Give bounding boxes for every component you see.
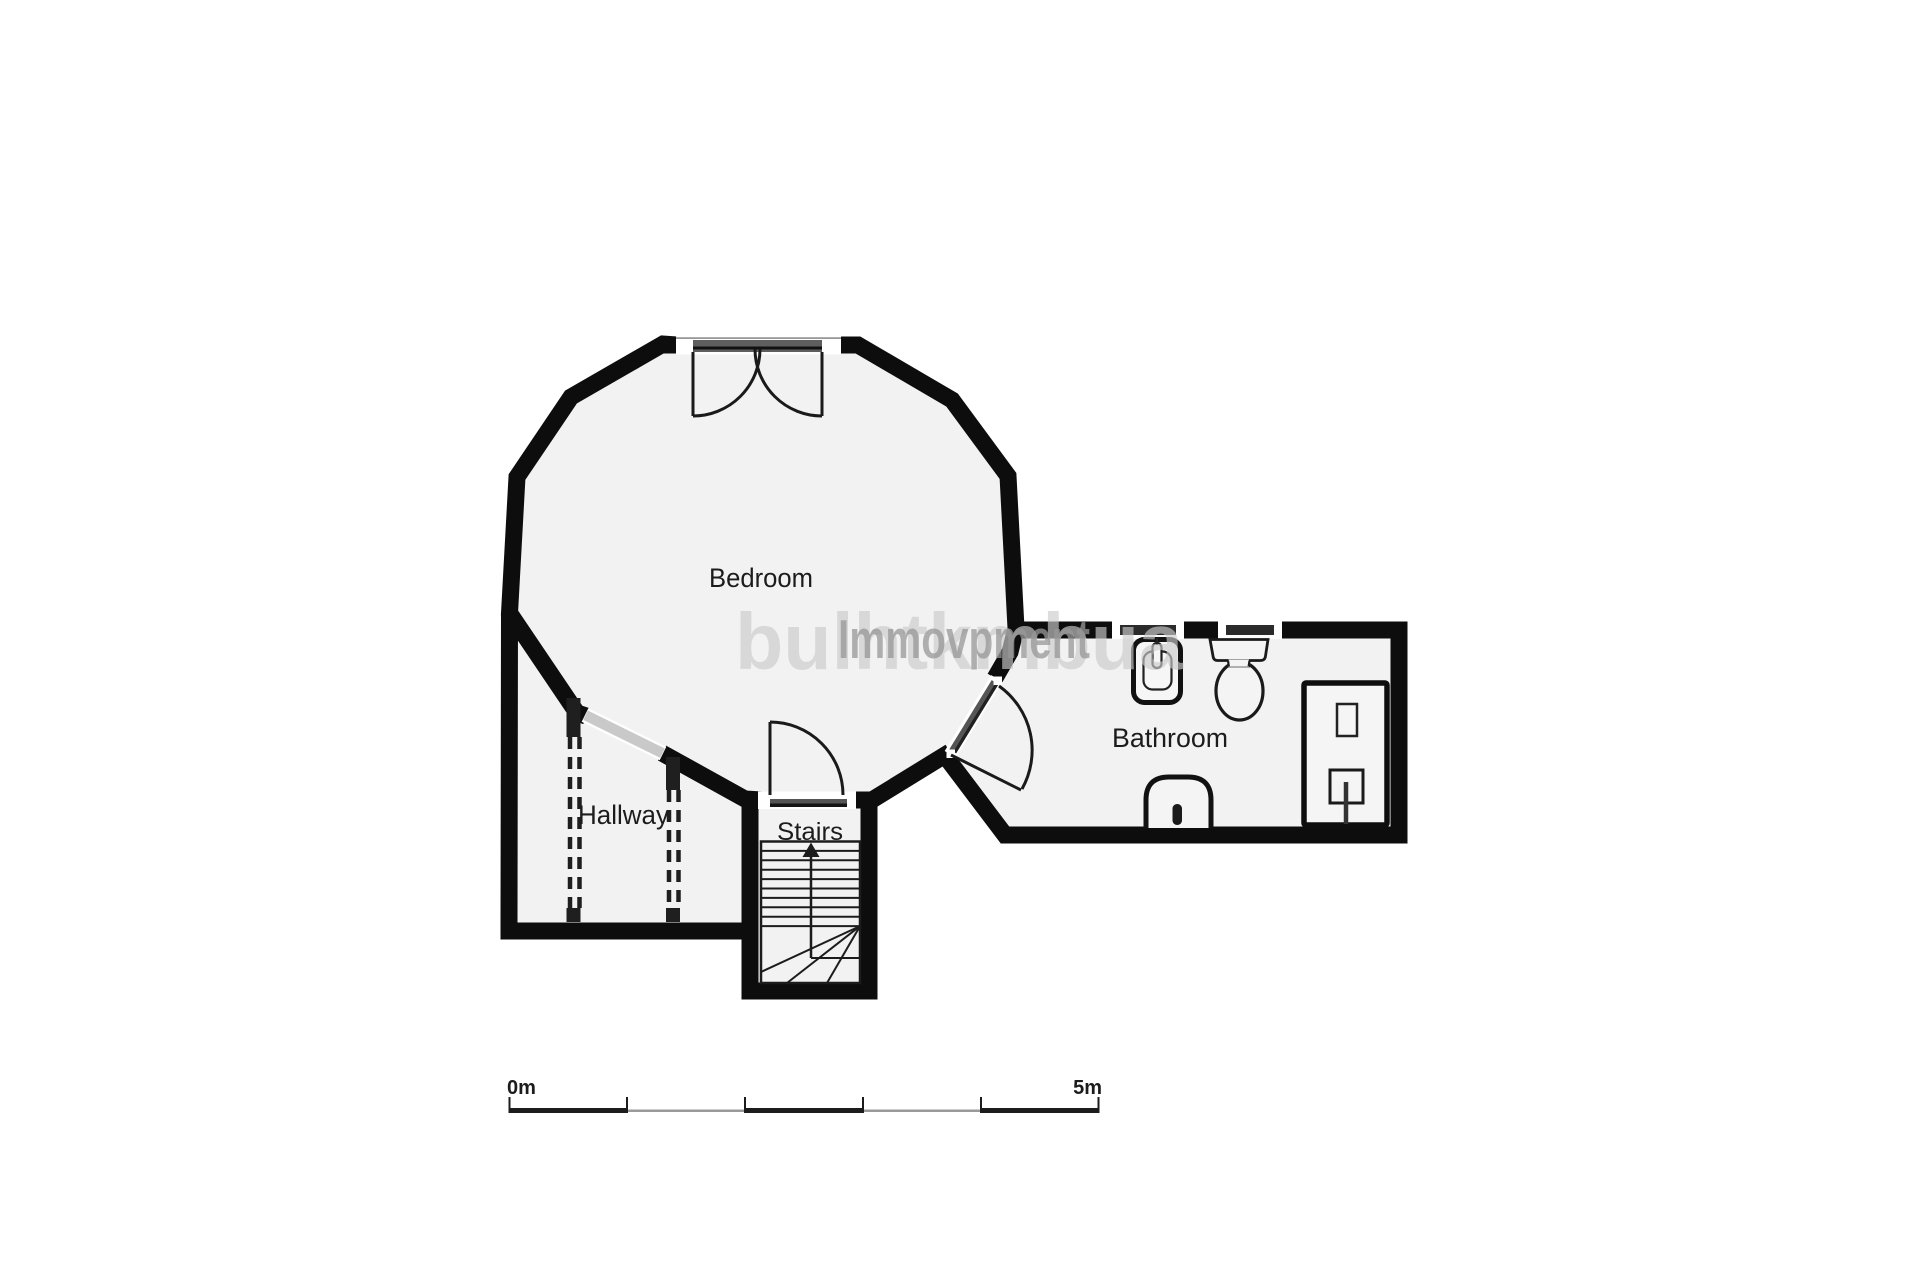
svg-text:Hallway: Hallway xyxy=(578,800,669,830)
svg-text:Immovpment: Immovpment xyxy=(838,608,1090,670)
svg-text:5m: 5m xyxy=(1073,1077,1102,1099)
svg-text:0m: 0m xyxy=(507,1077,536,1099)
svg-text:Bathroom: Bathroom xyxy=(1112,723,1228,753)
svg-text:Stairs: Stairs xyxy=(777,818,843,846)
svg-text:Bedroom: Bedroom xyxy=(709,563,813,593)
